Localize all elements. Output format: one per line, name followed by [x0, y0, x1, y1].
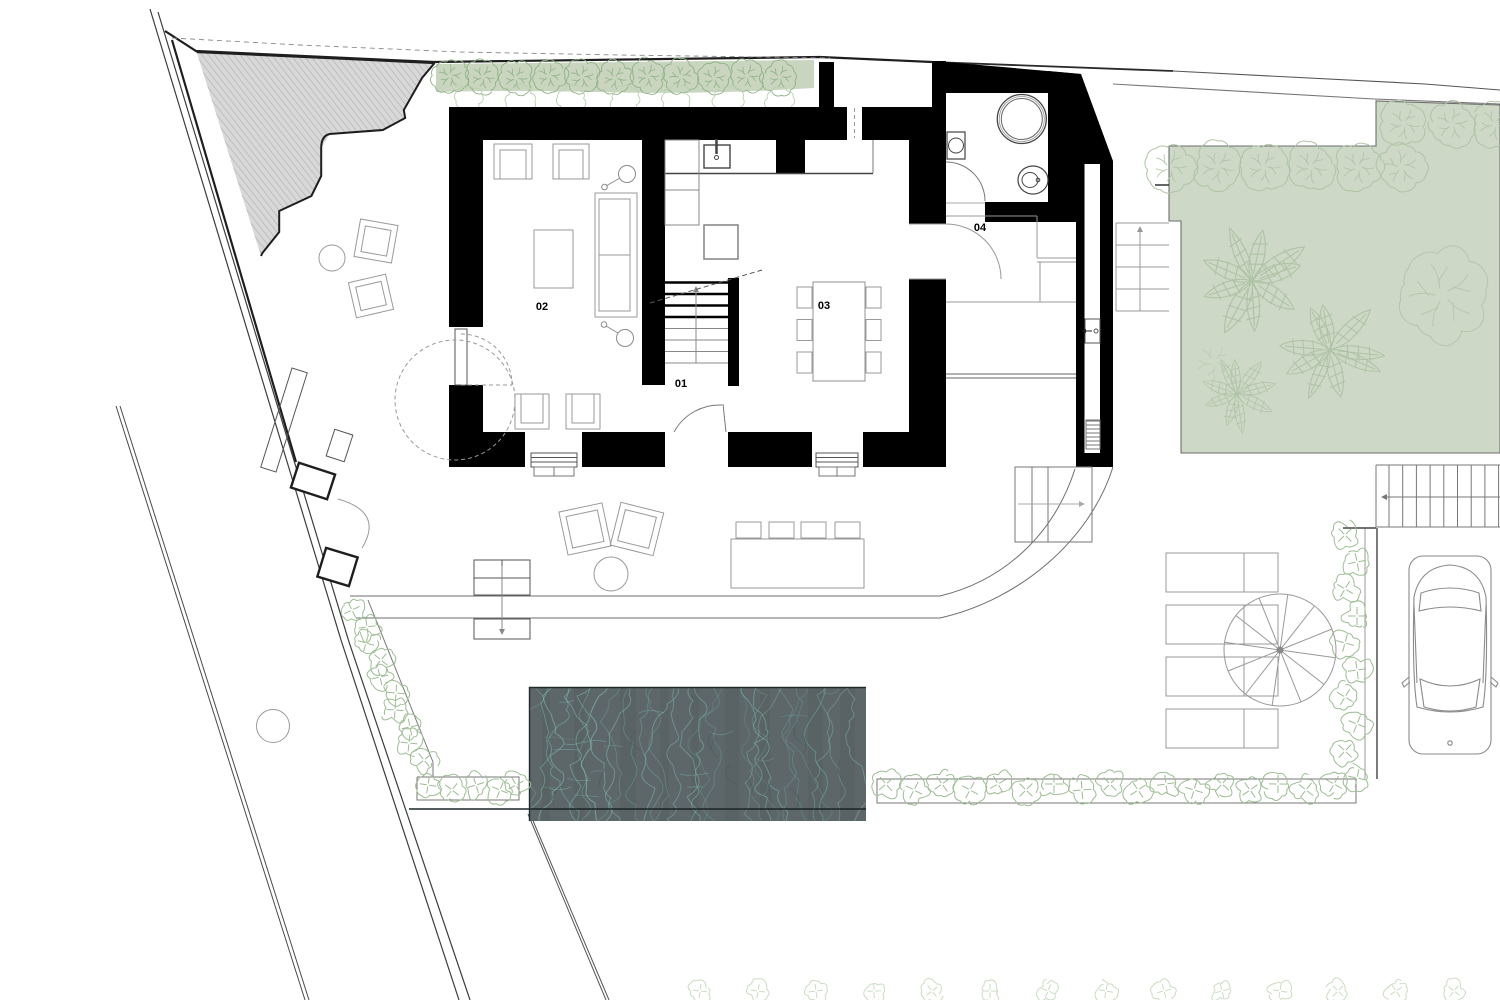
svg-text:03: 03 [818, 300, 830, 312]
svg-text:02: 02 [536, 301, 548, 313]
svg-text:04: 04 [974, 222, 987, 234]
svg-text:01: 01 [675, 378, 687, 390]
